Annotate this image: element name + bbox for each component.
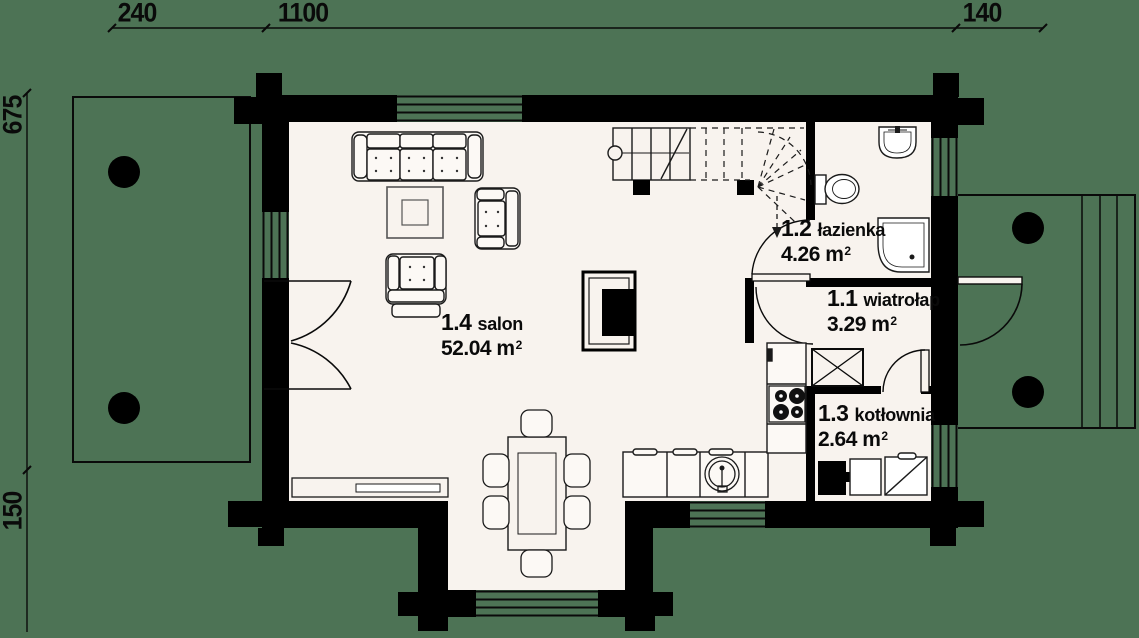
armchair (475, 188, 520, 249)
dim-top-240: 240 (118, 0, 157, 29)
terrace-column (108, 392, 140, 424)
boiler (818, 461, 850, 495)
porch-column (1012, 376, 1044, 408)
room-number: 1.1 (827, 285, 857, 311)
cooktop (769, 386, 805, 422)
room-number: 1.4 (441, 309, 471, 335)
dining-chair (564, 496, 590, 529)
room-name: salon (477, 314, 523, 334)
windowsill-bench (292, 478, 448, 497)
storage-cabinet (850, 459, 881, 495)
toilet (815, 175, 859, 205)
window (690, 501, 765, 528)
room-number: 1.3 (818, 400, 848, 426)
room-label-kotlownia: 1.3kotłownia 2.64 m2 (818, 402, 935, 451)
dining-chair (564, 454, 590, 487)
window (397, 95, 522, 122)
room-name: wiatrołap (863, 290, 939, 310)
dim-left-150: 150 (0, 492, 29, 531)
dining-chair (483, 496, 509, 529)
window (931, 138, 958, 196)
dim-top-140: 140 (963, 0, 1002, 29)
window (262, 212, 289, 278)
floor-plan-canvas (0, 0, 1139, 638)
porch (955, 195, 1135, 428)
dim-left-675: 675 (0, 96, 29, 135)
window (476, 590, 598, 617)
water-heater (885, 453, 927, 495)
terrace (73, 97, 250, 462)
room-area: 2.64 (818, 428, 857, 451)
porch-column (1012, 212, 1044, 244)
fireplace (583, 272, 635, 350)
room-label-lazienka: 1.2łazienka 4.26 m2 (781, 217, 885, 266)
room-area: 4.26 (781, 243, 820, 266)
terrace-column (108, 156, 140, 188)
room-area: 52.04 (441, 337, 491, 360)
room-area: 3.29 (827, 313, 866, 336)
room-name: kotłownia (854, 405, 934, 425)
room-label-salon: 1.4salon 52.04 m2 (441, 311, 523, 360)
fridge (768, 349, 772, 361)
washbasin (879, 126, 916, 158)
dining-table (508, 437, 566, 550)
room-label-wiatrolap: 1.1wiatrołap 3.29 m2 (827, 287, 940, 336)
chimney-flue (812, 349, 863, 386)
dining-chair (521, 410, 552, 437)
sofa (352, 132, 483, 181)
footstool (392, 304, 440, 317)
shower (878, 218, 929, 272)
window (931, 425, 958, 487)
dining-chair (483, 454, 509, 487)
coffee-table (387, 187, 443, 238)
dim-top-1100: 1100 (278, 0, 328, 29)
floor-plan-page: 240 1100 140 675 150 1.4salon 52.04 m2 1… (0, 0, 1139, 638)
armchair (386, 254, 446, 317)
dining-chair (521, 550, 552, 577)
room-number: 1.2 (781, 215, 811, 241)
room-name: łazienka (817, 220, 885, 240)
